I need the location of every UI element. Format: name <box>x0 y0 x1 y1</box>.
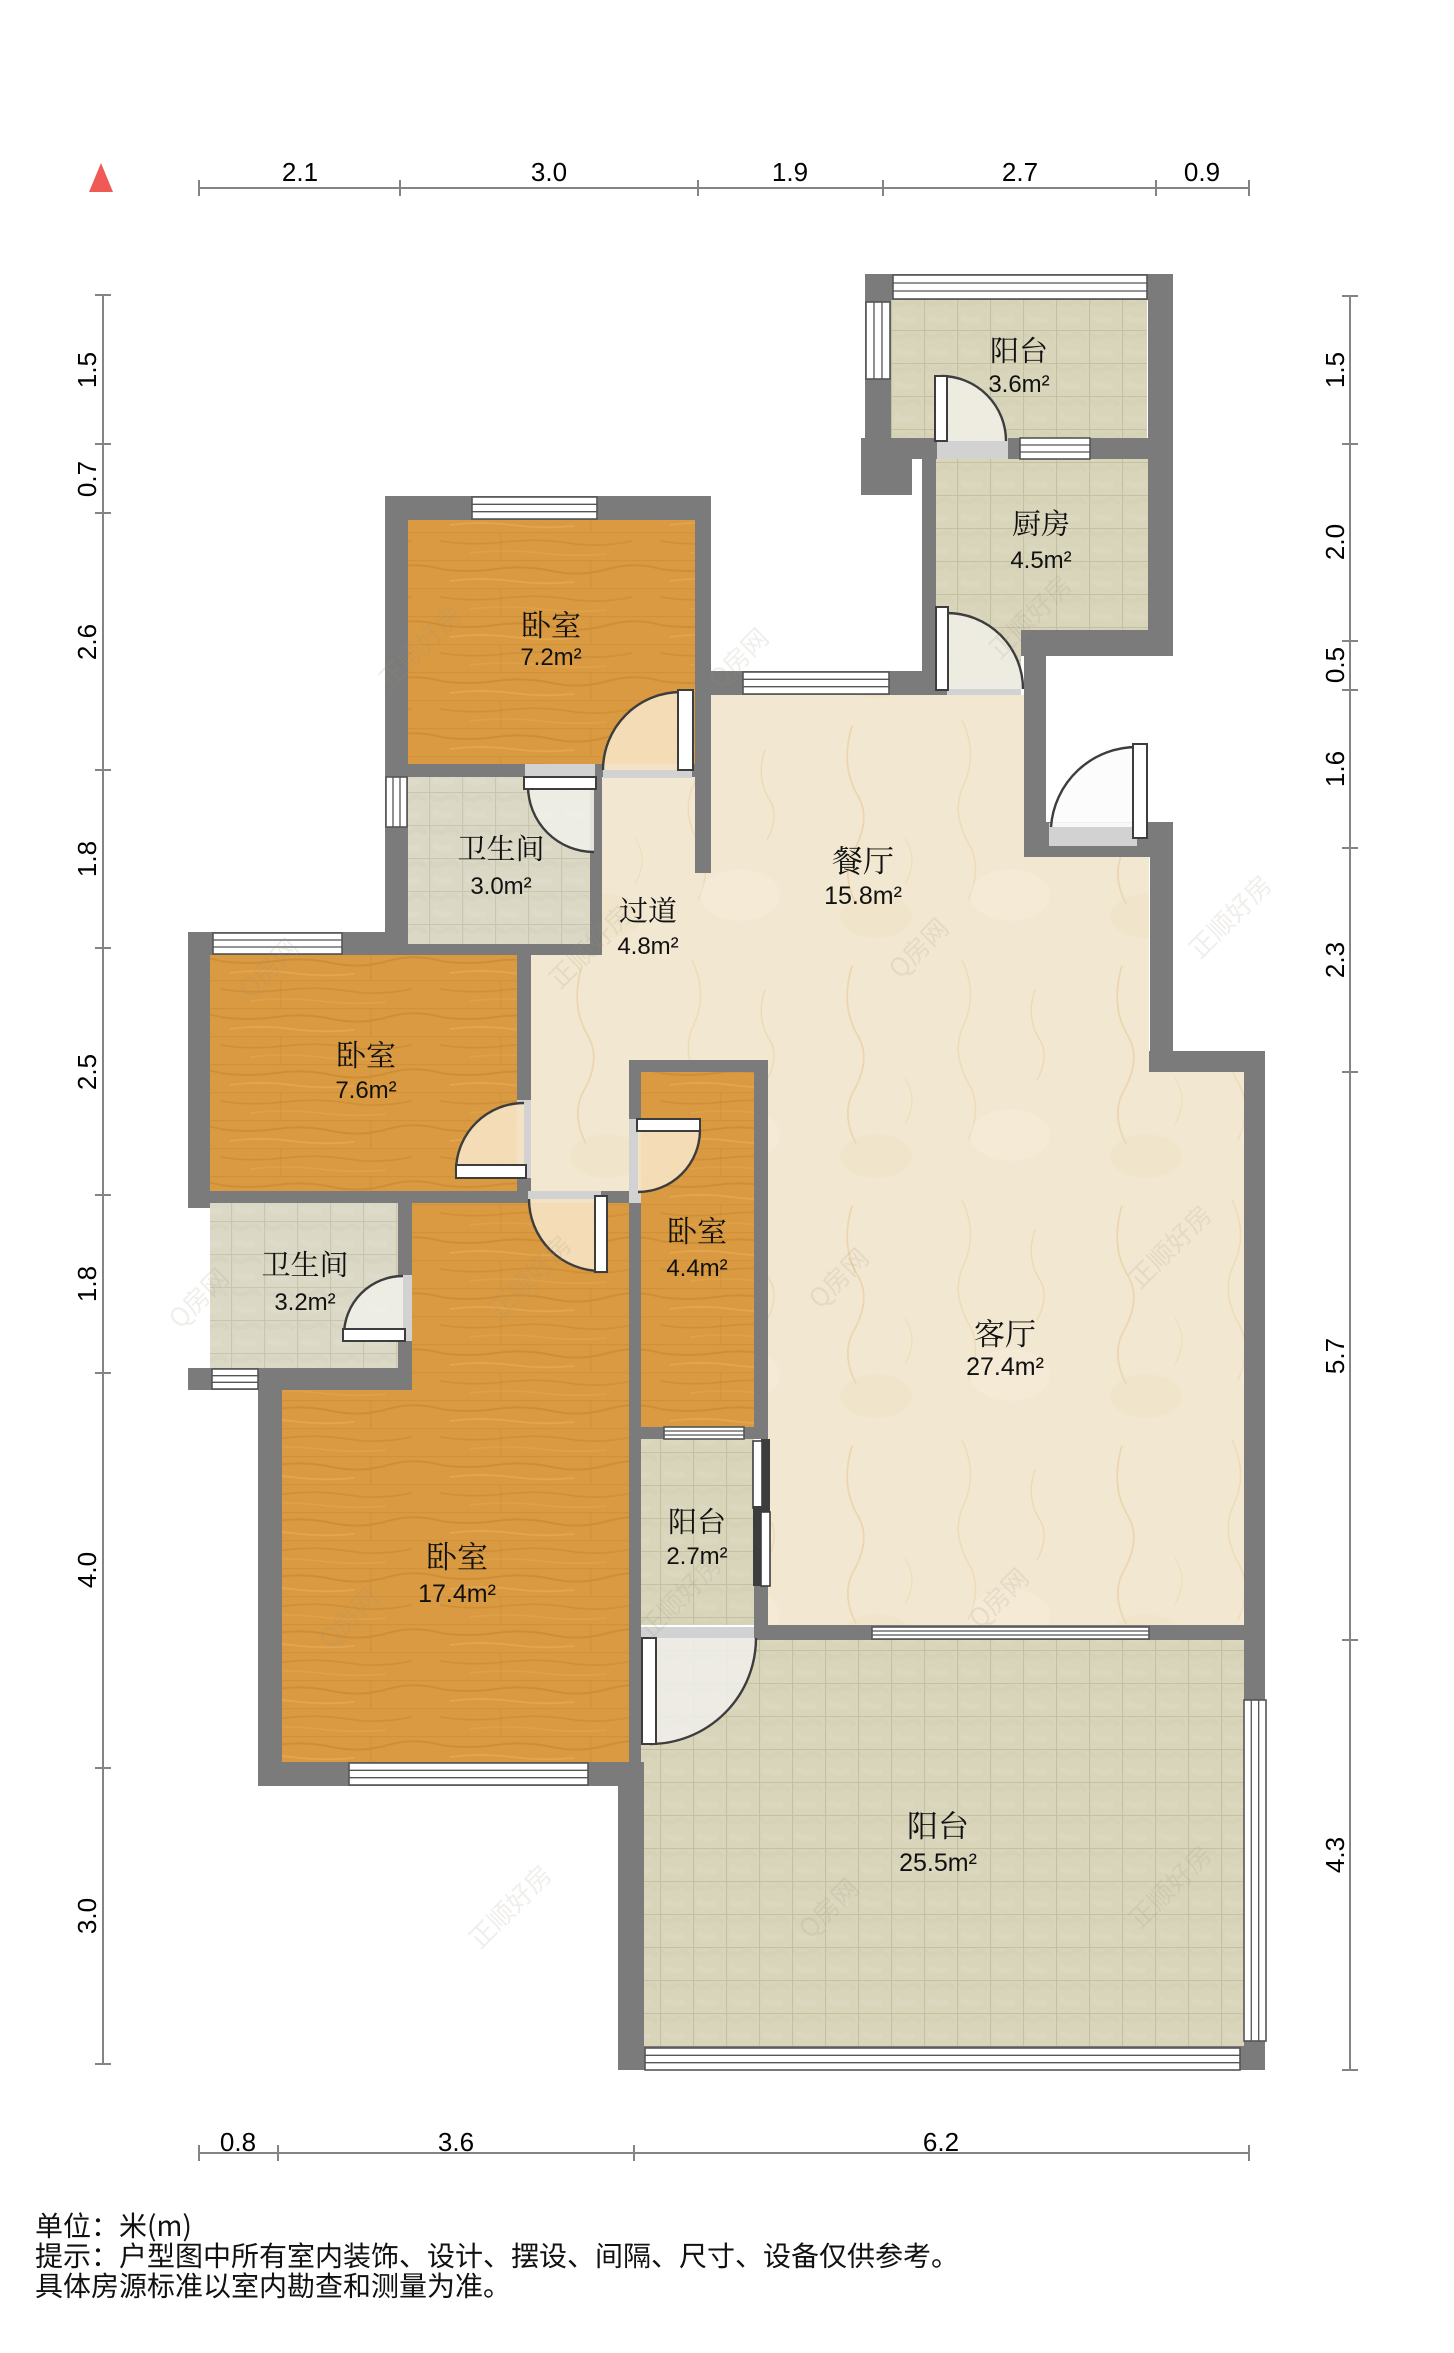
svg-text:15.8m²: 15.8m² <box>824 882 902 910</box>
svg-text:1.9: 1.9 <box>772 157 808 187</box>
svg-text:2.1: 2.1 <box>282 157 318 187</box>
svg-text:0.8: 0.8 <box>220 2127 256 2157</box>
svg-text:0.5: 0.5 <box>1320 647 1350 683</box>
svg-text:3.6: 3.6 <box>438 2127 474 2157</box>
svg-text:3.0m²: 3.0m² <box>470 873 531 900</box>
svg-text:7.2m²: 7.2m² <box>520 644 581 671</box>
svg-text:3.6m²: 3.6m² <box>988 371 1049 398</box>
svg-text:3.0: 3.0 <box>531 157 567 187</box>
svg-text:5.7: 5.7 <box>1320 1338 1350 1374</box>
svg-text:0.7: 0.7 <box>72 461 102 497</box>
svg-text:6.2: 6.2 <box>923 2127 959 2157</box>
svg-text:7.6m²: 7.6m² <box>335 1077 396 1104</box>
svg-text:4.0: 4.0 <box>72 1552 102 1588</box>
svg-text:2.6: 2.6 <box>72 624 102 660</box>
svg-text:2.7m²: 2.7m² <box>666 1543 727 1570</box>
svg-text:4.8m²: 4.8m² <box>617 933 678 960</box>
svg-text:4.3: 4.3 <box>1320 1837 1350 1873</box>
svg-text:2.7: 2.7 <box>1002 157 1038 187</box>
svg-text:1.5: 1.5 <box>72 352 102 388</box>
svg-text:27.4m²: 27.4m² <box>966 1353 1044 1381</box>
svg-text:1.5: 1.5 <box>1320 352 1350 388</box>
svg-text:3.0: 3.0 <box>72 1898 102 1934</box>
svg-text:1.8: 1.8 <box>72 841 102 877</box>
svg-text:3.2m²: 3.2m² <box>274 1289 335 1316</box>
svg-text:2.3: 2.3 <box>1320 942 1350 978</box>
svg-text:1.8: 1.8 <box>72 1266 102 1302</box>
svg-text:17.4m²: 17.4m² <box>418 1580 496 1608</box>
svg-text:4.4m²: 4.4m² <box>666 1255 727 1282</box>
svg-text:0.9: 0.9 <box>1184 157 1220 187</box>
svg-text:4.5m²: 4.5m² <box>1010 547 1071 574</box>
svg-text:2.5: 2.5 <box>72 1054 102 1090</box>
svg-text:1.6: 1.6 <box>1320 751 1350 787</box>
svg-text:2.0: 2.0 <box>1320 524 1350 560</box>
svg-text:25.5m²: 25.5m² <box>899 1849 977 1877</box>
